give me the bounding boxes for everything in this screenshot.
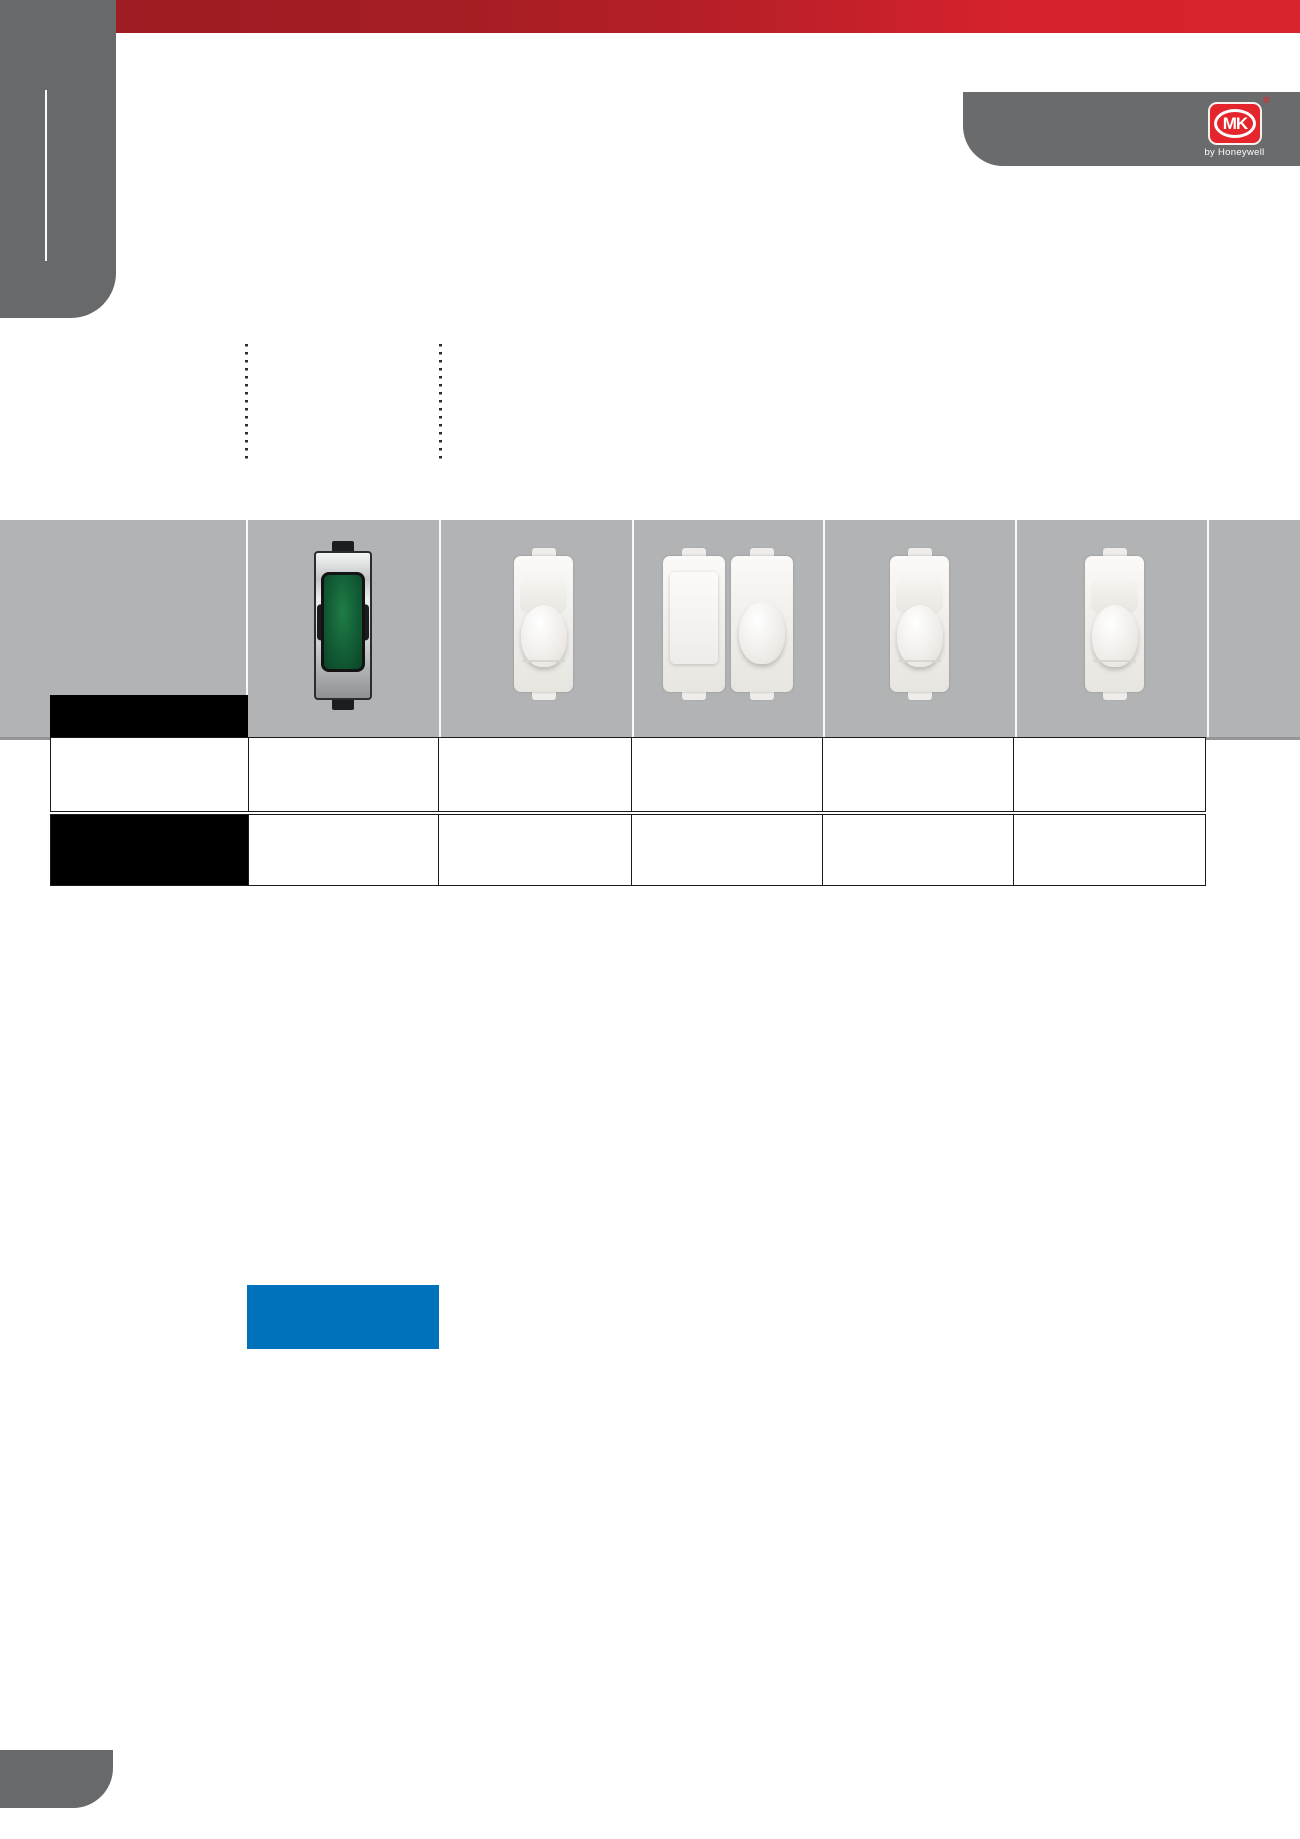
module-body-rocker [731, 556, 793, 692]
dotted-leader-line [245, 344, 248, 462]
module-blank-plate [670, 572, 718, 664]
module-rocker [739, 602, 785, 664]
product-image-grid-module-white-double [663, 548, 793, 700]
product-image-grid-switch-green [314, 541, 372, 710]
band-column-divider [823, 520, 825, 737]
table-row [50, 814, 1206, 886]
table-header-cell-black [51, 815, 249, 885]
product-image-grid-module-white [512, 548, 575, 700]
mk-logo-oval: MK [1214, 109, 1256, 138]
module-body [514, 556, 573, 692]
mk-logo: MK [1208, 102, 1262, 145]
catalog-page: ® MK by Honeywell [0, 0, 1300, 1839]
blue-highlight-block [247, 1285, 439, 1349]
table-cell [823, 738, 1015, 811]
tab-divider-line [45, 90, 47, 261]
module-detail-line [898, 660, 941, 662]
band-column-divider [1207, 520, 1209, 737]
table-cell [249, 815, 440, 885]
table-cell [1014, 815, 1205, 885]
table-cell [632, 738, 823, 811]
header-red-bar [115, 0, 1300, 33]
mk-logo-text: MK [1223, 115, 1247, 132]
table-cell [439, 815, 632, 885]
module-detail-line [522, 660, 565, 662]
table-row [50, 737, 1206, 812]
table-cell [823, 815, 1015, 885]
module-detail-line [1093, 660, 1136, 662]
table-cell [1014, 738, 1205, 811]
table-cell [249, 738, 440, 811]
module-body [314, 551, 372, 700]
bottom-left-corner-tab [0, 1750, 113, 1808]
module-body [890, 556, 949, 692]
module-body [1085, 556, 1144, 692]
module-body-blank [663, 556, 725, 692]
band-column-divider [439, 520, 441, 737]
band-column-divider [632, 520, 634, 737]
table-cell [632, 815, 823, 885]
dotted-leader-line [439, 344, 442, 462]
module-green-rocker [321, 572, 365, 672]
registered-trademark-symbol: ® [1263, 95, 1270, 105]
module-rocker [521, 605, 567, 667]
top-left-corner-tab [0, 0, 116, 318]
module-rocker [1092, 605, 1138, 667]
band-column-divider [1015, 520, 1017, 737]
product-image-grid-module-white [1083, 548, 1146, 700]
table-header-cell-black [50, 695, 248, 738]
by-honeywell-label: by Honeywell [1187, 147, 1282, 158]
product-image-grid-module-white [888, 548, 951, 700]
table-cell [51, 738, 249, 811]
brand-header-box: ® MK by Honeywell [963, 92, 1300, 166]
module-rocker [897, 605, 943, 667]
table-cell [439, 738, 632, 811]
